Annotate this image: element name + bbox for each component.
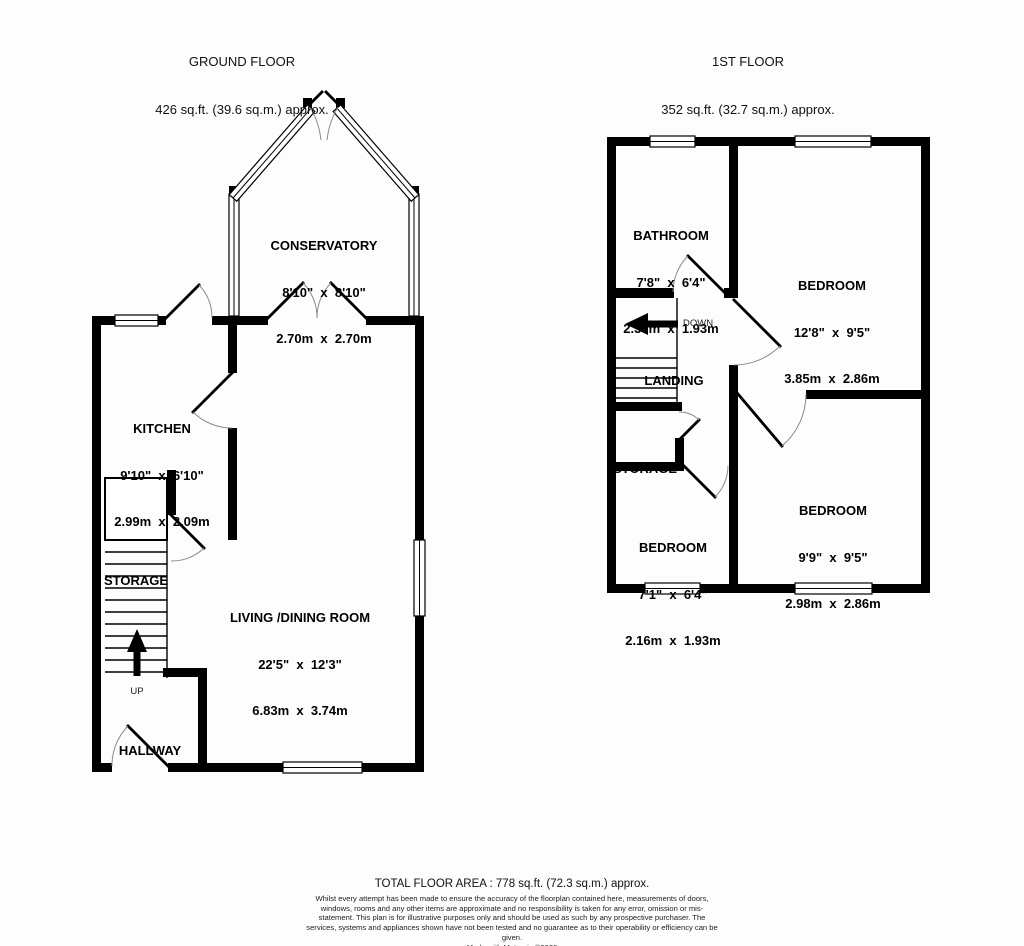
ground-floor-title: GROUND FLOOR xyxy=(155,54,328,70)
door-swing xyxy=(734,300,780,365)
first-floor-area: 352 sq.ft. (32.7 sq.m.) approx. xyxy=(661,102,834,118)
plan-title-ground: GROUND FLOOR 426 sq.ft. (39.6 sq.m.) app… xyxy=(155,22,328,150)
room-label-kitchen: KITCHEN 9'10" x 6'10" 2.99m x 2.09m xyxy=(114,390,209,561)
window xyxy=(414,540,425,616)
room-label-storage-first: STORAGE xyxy=(613,430,677,508)
window xyxy=(115,315,158,326)
room-label-hallway: HALLWAY xyxy=(119,712,181,790)
room-label-conservatory: CONSERVATORY 8'10" x 8'10" 2.70m x 2.70m xyxy=(271,207,378,378)
window xyxy=(333,105,419,201)
window xyxy=(283,762,362,773)
floorplan-page: GROUND FLOOR 426 sq.ft. (39.6 sq.m.) app… xyxy=(0,0,1024,946)
credit-text: Made with Metropix ©2026 xyxy=(306,943,718,946)
stairs-up-label: UP xyxy=(130,686,143,697)
room-label-bedroom-3: BEDROOM 9'9" x 9'5" 2.98m x 2.86m xyxy=(785,472,880,643)
room-label-living-dining: LIVING /DINING ROOM 22'5" x 12'3" 6.83m … xyxy=(230,579,370,750)
door-swing xyxy=(684,466,728,497)
total-floor-area: TOTAL FLOOR AREA : 778 sq.ft. (72.3 sq.m… xyxy=(306,878,718,890)
disclaimer-text: Whilst every attempt has been made to en… xyxy=(306,894,718,943)
room-label-bedroom-2: BEDROOM 7'1" x 6'4" 2.16m x 1.93m xyxy=(625,509,720,680)
window xyxy=(409,194,419,316)
room-label-landing: LANDING xyxy=(644,342,703,420)
ground-floor-area: 426 sq.ft. (39.6 sq.m.) approx. xyxy=(155,102,328,118)
plan-title-first: 1ST FLOOR 352 sq.ft. (32.7 sq.m.) approx… xyxy=(661,22,834,150)
window xyxy=(229,194,239,316)
stairs-down-label: DOWN xyxy=(683,318,713,329)
first-floor-title: 1ST FLOOR xyxy=(661,54,834,70)
room-label-bedroom-1: BEDROOM 12'8" x 9'5" 3.85m x 2.86m xyxy=(784,247,879,418)
footer: TOTAL FLOOR AREA : 778 sq.ft. (72.3 sq.m… xyxy=(306,878,718,946)
door-swing xyxy=(166,285,212,318)
room-label-storage-ground: STORAGE xyxy=(104,542,168,620)
